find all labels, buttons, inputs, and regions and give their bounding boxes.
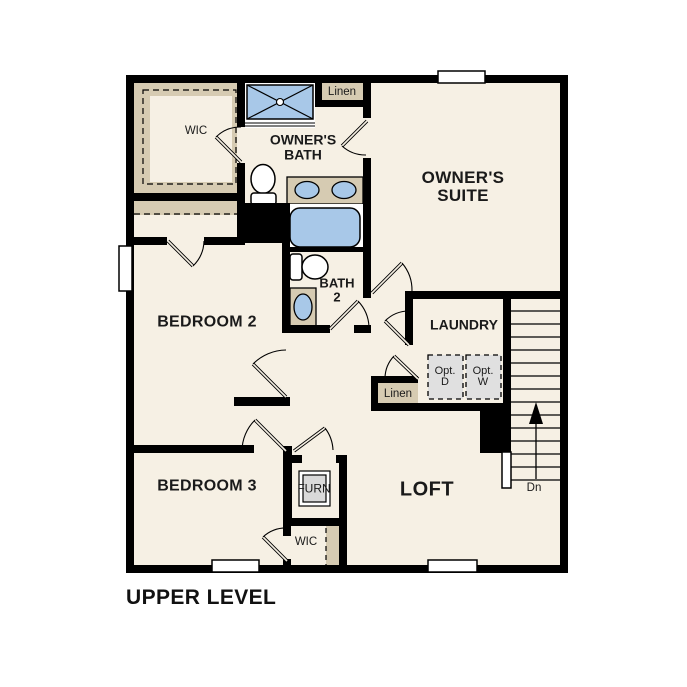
room-label-furn: FURN	[297, 483, 330, 496]
floorplan-page: WIC Linen OWNER'S BATH OWNER'S SUITE BED…	[0, 0, 687, 687]
label-opt-washer: Opt. W	[473, 366, 494, 388]
room-label-wic-top: WIC	[185, 125, 207, 137]
room-label-linen-mid: Linen	[384, 388, 412, 400]
bedroom2-closet	[134, 201, 237, 215]
owners-bath-vanity-icon	[287, 177, 363, 204]
shower-icon	[245, 83, 315, 128]
room-label-wic-bottom: WIC	[295, 536, 317, 548]
wic-bottom-shelf	[326, 526, 339, 565]
room-label-bath2: BATH 2	[319, 276, 354, 303]
bathtub-icon	[287, 204, 363, 250]
stairs-dn-label: Dn	[527, 482, 542, 494]
window-left	[119, 246, 132, 291]
window-bottom-right	[428, 560, 477, 572]
owners-bath-toilet-icon	[251, 165, 276, 206]
room-label-owners-bath: OWNER'S BATH	[270, 132, 336, 161]
room-label-owners-suite: OWNER'S SUITE	[422, 169, 505, 205]
bath2-vanity-icon	[290, 288, 316, 328]
window-bottom-left	[212, 560, 259, 572]
floorplan-drawing	[0, 0, 687, 687]
window-top	[438, 71, 485, 83]
room-label-bedroom2: BEDROOM 2	[157, 315, 257, 332]
room-label-laundry: LAUNDRY	[430, 318, 498, 333]
label-opt-dryer: Opt. D	[435, 366, 456, 388]
room-label-bedroom3: BEDROOM 3	[157, 479, 257, 496]
plan-title: UPPER LEVEL	[126, 586, 276, 610]
room-label-linen-top: Linen	[328, 86, 356, 98]
stair-railing	[502, 452, 511, 488]
wic-top-closet	[134, 83, 237, 193]
room-label-loft: LOFT	[400, 480, 454, 501]
